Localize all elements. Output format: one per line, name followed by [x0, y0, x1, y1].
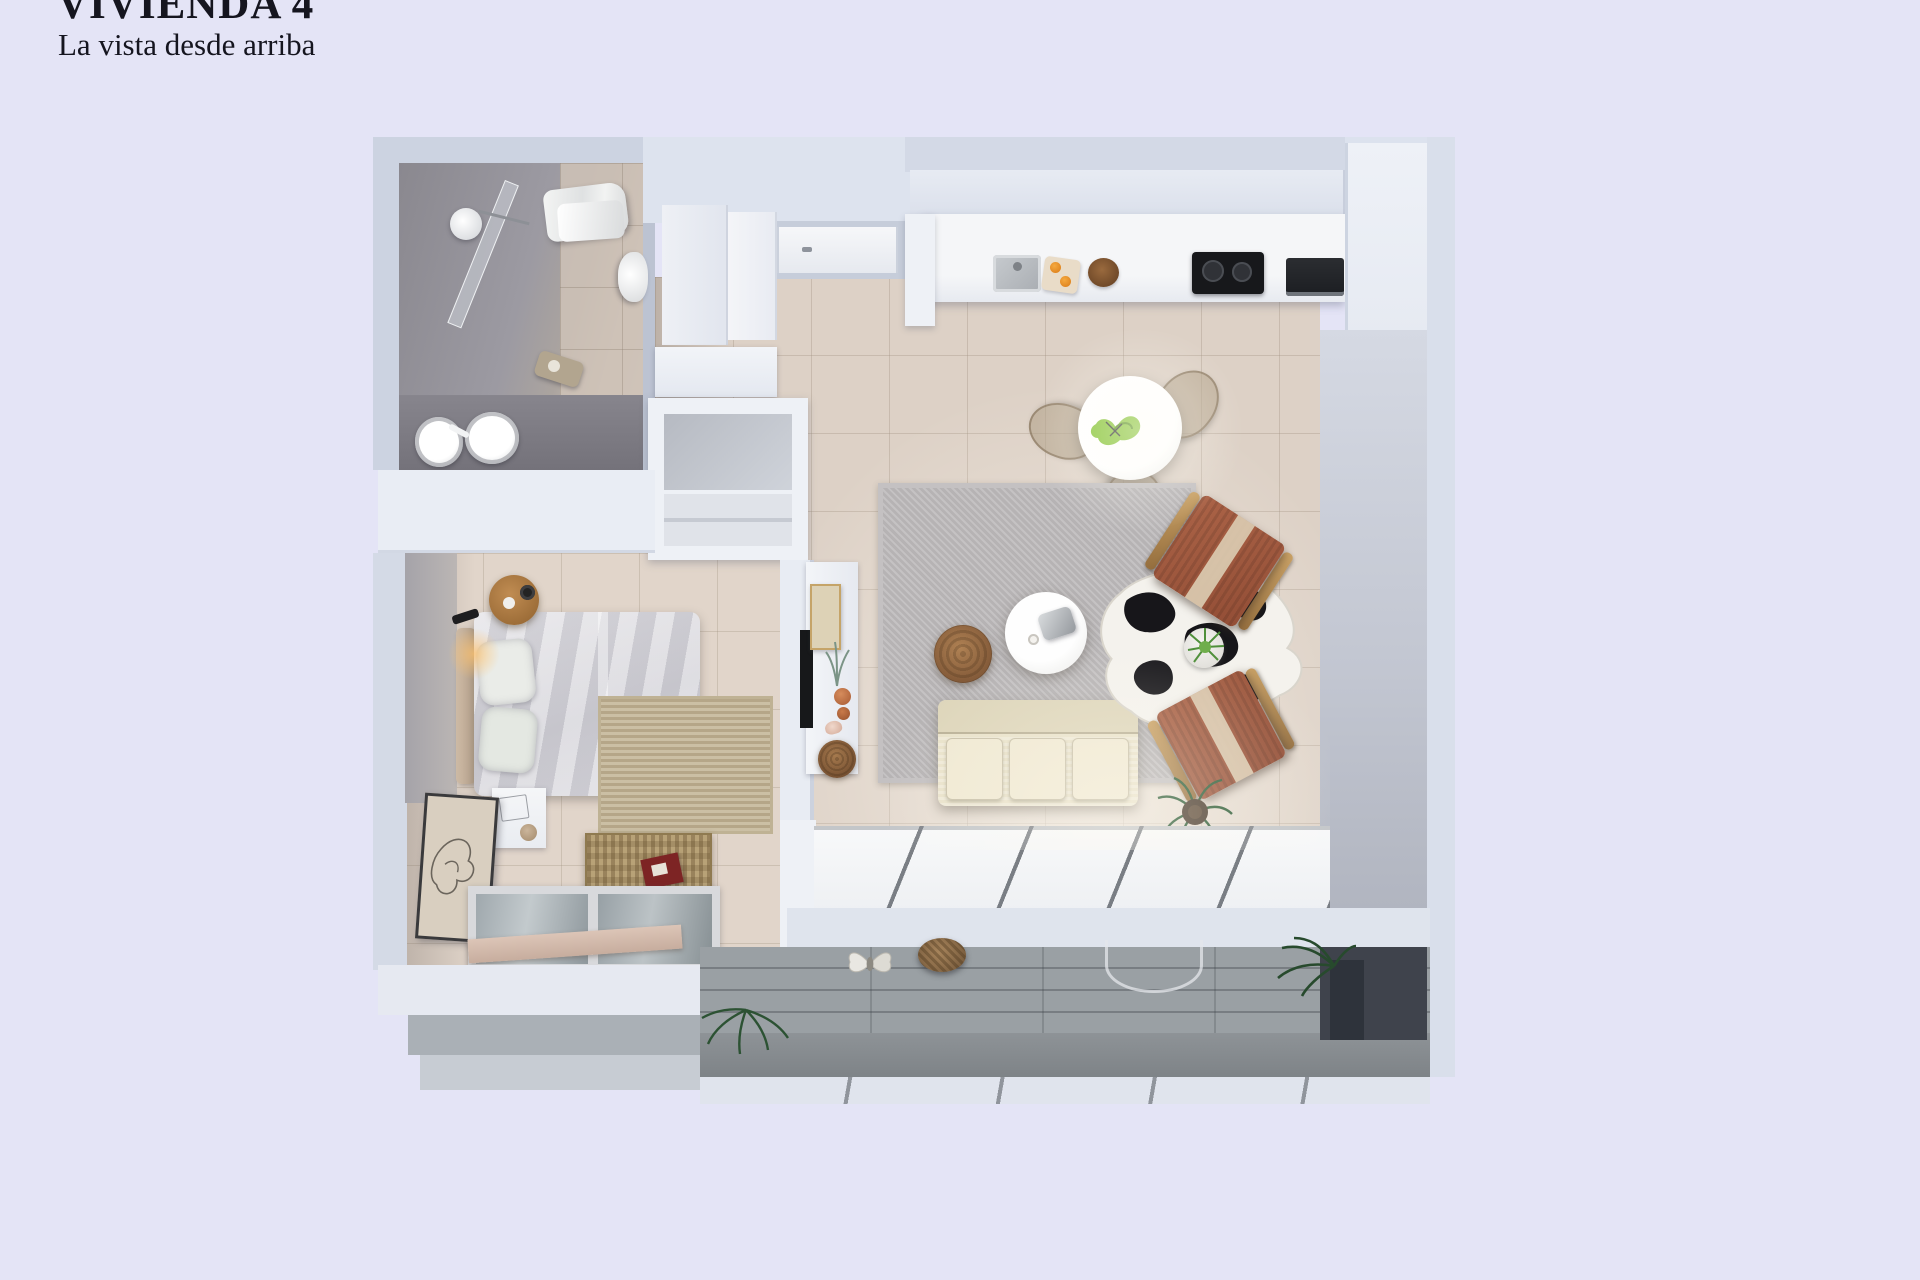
- bedroom-top-wall: [378, 470, 655, 553]
- toilet: [618, 252, 648, 302]
- terrace-arc-decor: [1105, 940, 1203, 993]
- oven-appliance: [1286, 258, 1344, 296]
- coffee-table-candle: [1028, 634, 1039, 645]
- terrace-plant-right: [1248, 936, 1358, 998]
- shower-head: [450, 208, 482, 240]
- door-handle: [802, 247, 812, 252]
- dining-table-plant: [1086, 402, 1144, 454]
- terrace-outer-slab-band: [700, 1077, 1430, 1104]
- nightstand-lamp: [520, 585, 535, 600]
- wicker-pouf: [934, 625, 992, 683]
- front-door: [777, 227, 898, 273]
- terrace-left-wall-band: [378, 965, 700, 1015]
- cutting-board: [1041, 256, 1081, 295]
- kitchen-counter: [922, 214, 1345, 302]
- nightstand-dish: [503, 597, 515, 609]
- bathroom-sink-right: [465, 412, 519, 464]
- kitchen-upper-cabinets: [910, 170, 1345, 218]
- cooktop-burner-2: [1232, 262, 1252, 282]
- console-art-botanical: [822, 636, 852, 688]
- nightstand-pompom: [520, 824, 537, 841]
- closet-shelves: [664, 494, 792, 546]
- orange-2: [1060, 276, 1071, 287]
- towel-second: [557, 200, 625, 243]
- kitchen-bowl: [1088, 258, 1119, 287]
- console-vase-2: [837, 707, 850, 720]
- bathroom-wall-left: [373, 137, 399, 470]
- terrace-plant-left: [688, 1000, 804, 1056]
- cooktop-burner-1: [1202, 260, 1224, 282]
- jute-rug: [598, 696, 773, 834]
- kitchen-faucet: [1013, 262, 1022, 271]
- nightstand-sketch: [498, 794, 529, 822]
- console-vase-1: [834, 688, 851, 705]
- sconce-glow: [448, 628, 500, 680]
- sofa-cushion-1: [946, 738, 1003, 800]
- console-wicker-stool: [818, 740, 856, 778]
- right-wall-inner-face: [1320, 330, 1427, 950]
- closet-interior: [664, 414, 792, 490]
- right-wall-outer-band: [1427, 137, 1455, 1077]
- bedroom-left-wall-face: [405, 553, 457, 803]
- cowhide-plant: [1180, 622, 1230, 672]
- kitchen-counter-column: [905, 214, 935, 326]
- page-subtitle: La vista desde arriba: [58, 27, 315, 63]
- pendant-moth-lamp: [846, 942, 894, 982]
- sofa-cushion-3: [1072, 738, 1129, 800]
- terrace-left-step-light: [420, 1055, 700, 1090]
- bed-pillow-2: [477, 706, 538, 775]
- page-title: VIVIENDA 4: [57, 0, 314, 29]
- sliding-door-band: [814, 826, 1330, 912]
- bedroom-left-wall-outer: [373, 553, 407, 970]
- orange-1: [1050, 262, 1061, 273]
- pendant-wicker-ball: [918, 938, 966, 972]
- hall-wardrobe-b: [728, 212, 777, 340]
- kitchen-sink: [993, 255, 1041, 292]
- hall-console: [655, 347, 777, 397]
- sofa-cushion-2: [1009, 738, 1066, 800]
- terrace-left-step-dark: [408, 1015, 700, 1055]
- bathroom-wall-top: [373, 137, 655, 163]
- bath-bottle: [548, 360, 560, 372]
- hall-wardrobe-a: [662, 205, 728, 345]
